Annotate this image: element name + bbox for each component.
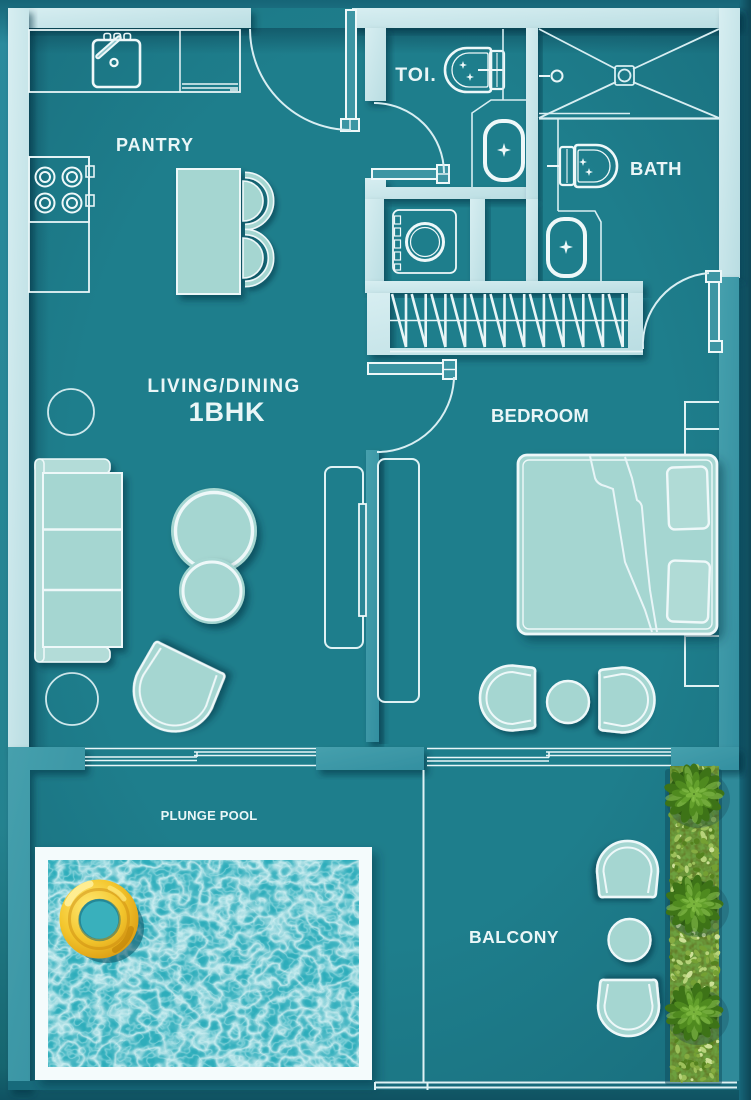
svg-text:LIVING/DINING: LIVING/DINING: [147, 376, 300, 397]
svg-text:PANTRY: PANTRY: [116, 135, 194, 155]
svg-text:PLUNGE POOL: PLUNGE POOL: [161, 808, 258, 823]
svg-text:BATH: BATH: [630, 158, 682, 179]
svg-text:1BHK: 1BHK: [189, 397, 266, 427]
svg-text:TOI.: TOI.: [395, 64, 437, 86]
svg-text:BEDROOM: BEDROOM: [491, 405, 589, 426]
svg-text:BALCONY: BALCONY: [469, 927, 559, 947]
